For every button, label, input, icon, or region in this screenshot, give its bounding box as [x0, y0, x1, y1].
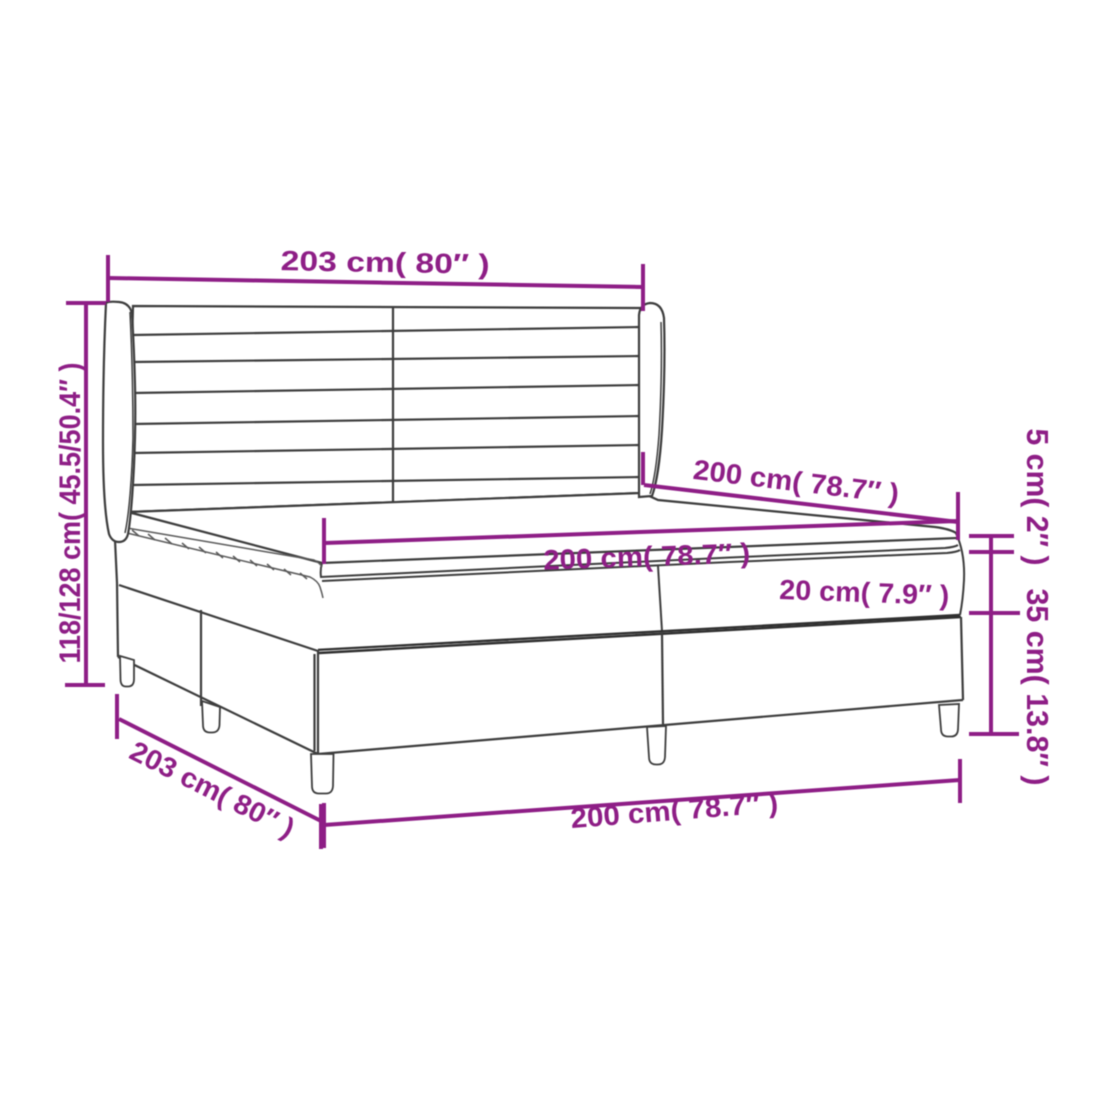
svg-text:20 cm( 7.9″ ): 20 cm( 7.9″ ) [779, 574, 950, 611]
svg-text:35 cm( 13.8″ ): 35 cm( 13.8″ ) [1020, 589, 1055, 786]
svg-text:118/128 cm( 45.5/50.4″ ): 118/128 cm( 45.5/50.4″ ) [54, 363, 87, 664]
svg-text:203 cm( 80″ ): 203 cm( 80″ ) [280, 245, 490, 280]
svg-text:5 cm( 2″ ): 5 cm( 2″ ) [1020, 429, 1055, 566]
